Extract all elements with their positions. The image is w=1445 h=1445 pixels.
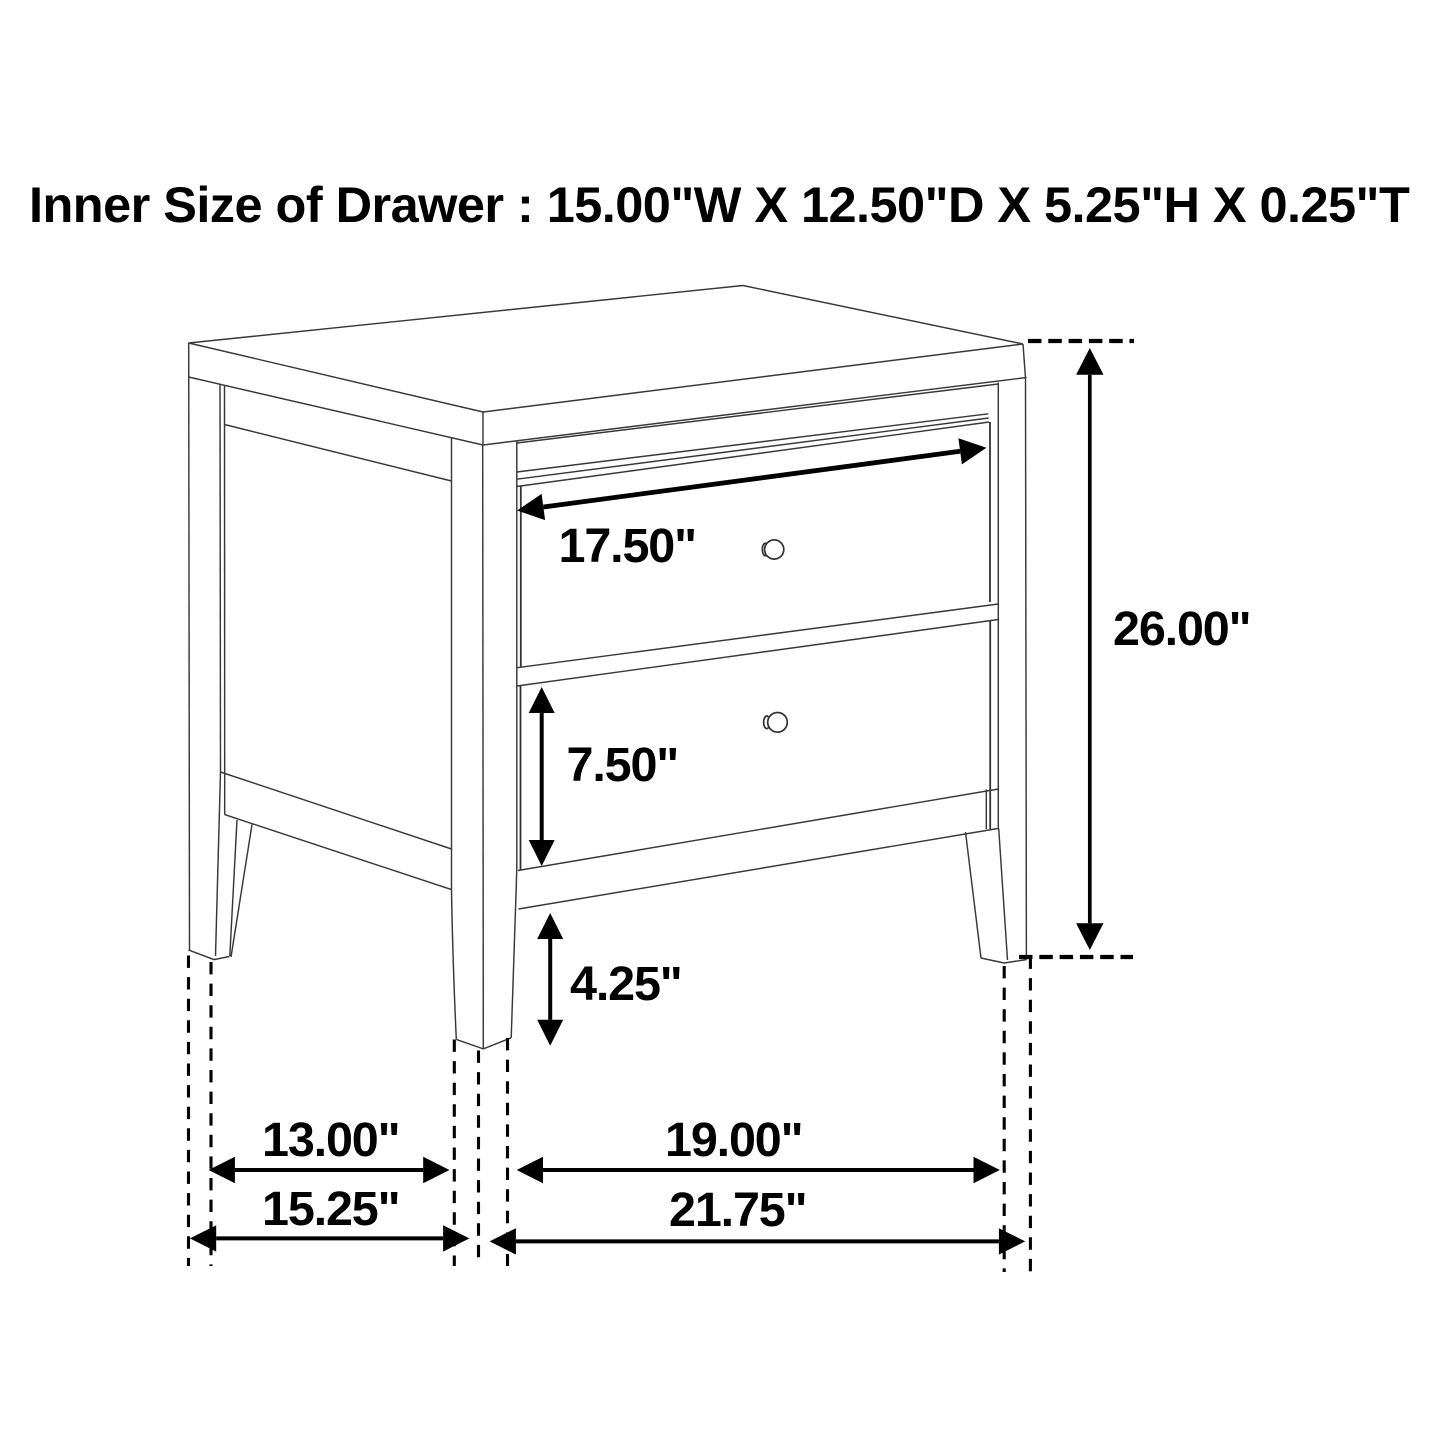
svg-text:21.75": 21.75" — [669, 1183, 806, 1237]
svg-text:7.50": 7.50" — [567, 738, 679, 792]
svg-text:17.50": 17.50" — [559, 519, 696, 573]
svg-text:4.25": 4.25" — [570, 957, 682, 1011]
svg-text:Inner Size of Drawer : 15.00"W: Inner Size of Drawer : 15.00"W X 12.50"D… — [29, 176, 1410, 233]
svg-text:26.00": 26.00" — [1113, 602, 1250, 656]
svg-text:19.00": 19.00" — [665, 1113, 802, 1167]
svg-text:15.25": 15.25" — [262, 1182, 399, 1236]
svg-text:13.00": 13.00" — [262, 1113, 399, 1167]
